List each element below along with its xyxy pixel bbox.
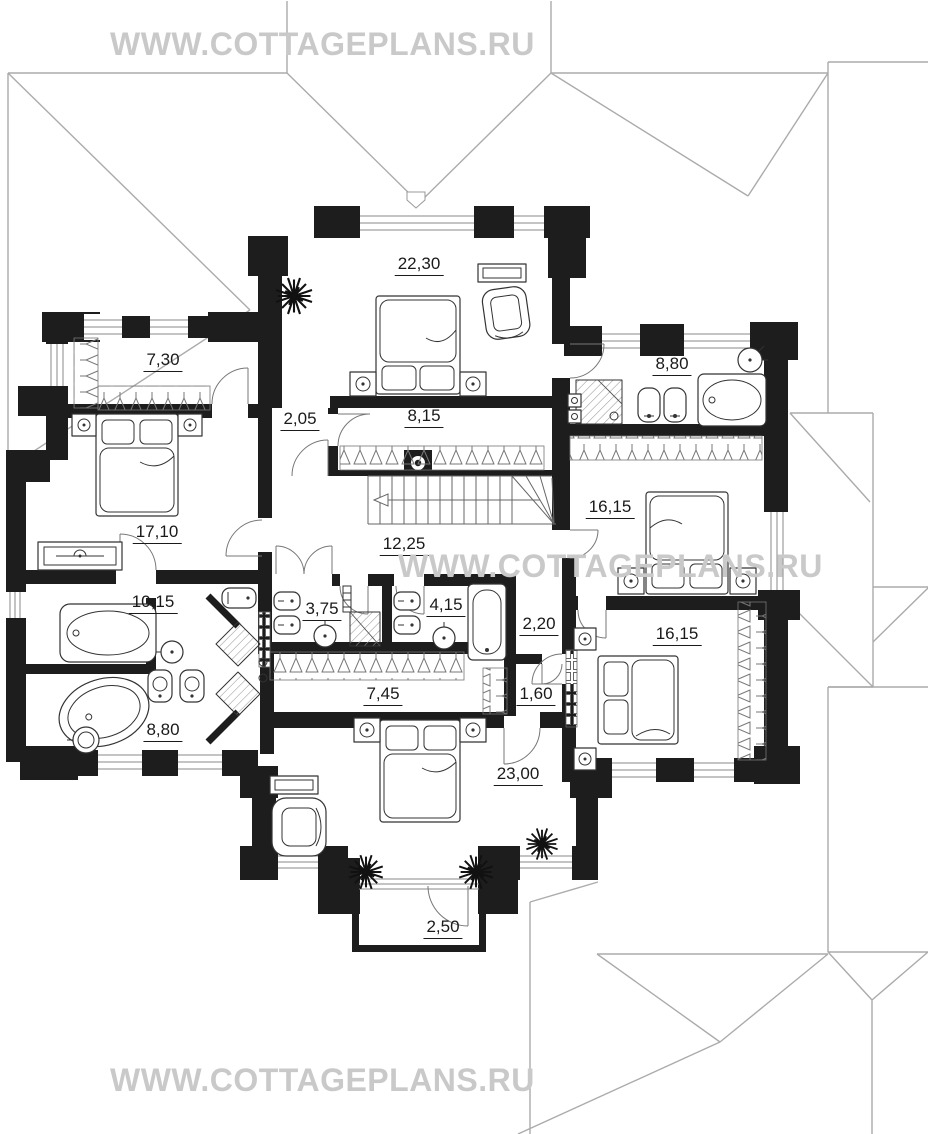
sinks-top-right (638, 388, 686, 422)
room-label-wardrobe-8-15: 8,15 (404, 407, 443, 428)
wardrobe-16-15-lower (738, 602, 766, 760)
room-label-bathroom-4-15: 4,15 (426, 596, 465, 617)
room-label-bedroom-right-upper: 16,15 (586, 498, 635, 519)
room-label-bathroom-top-right: 8,80 (652, 355, 691, 376)
bathtub-4-15 (468, 584, 506, 660)
room-label-bedroom-right-lower: 16,15 (653, 625, 702, 646)
door-2-20-to-1-60 (542, 664, 562, 684)
watermark-middle: WWW.COTTAGEPLANS.RU (398, 548, 823, 585)
tv-top (478, 264, 526, 282)
shower-top-right (576, 380, 622, 424)
rail-8-15 (340, 446, 544, 470)
bed-bedroom-left (72, 414, 202, 516)
bed-bedroom-right-lower (574, 628, 678, 770)
door-bedroom-left (226, 520, 262, 556)
armchair-top (481, 285, 532, 341)
double-door-bath-3-75 (276, 546, 332, 574)
room-label-wardrobe-top-left: 7,30 (143, 351, 182, 372)
watermark-top: WWW.COTTAGEPLANS.RU (110, 26, 535, 63)
room-label-wardrobe-7-45: 7,45 (363, 685, 402, 706)
pedestal-sinks (148, 670, 204, 702)
toilets-3-75 (274, 592, 300, 634)
bed-bedroom-top (350, 296, 486, 396)
door-wardrobe-7-30 (212, 368, 248, 404)
sink-3-75 (314, 620, 336, 647)
toilets-left-pair (222, 588, 256, 608)
sink-alcove (156, 641, 183, 663)
room-label-bathroom-bottom-left: 8,80 (143, 721, 182, 742)
towel-radiator (343, 586, 351, 612)
room-label-hallway-1-60: 1,60 (516, 685, 555, 706)
tv-bottom (270, 776, 318, 794)
room-label-bathroom-3-75: 3,75 (302, 600, 341, 621)
room-label-balcony: 2,50 (423, 918, 462, 939)
room-label-hallway-2-20: 2,20 (519, 615, 558, 636)
rail-7-30 (98, 386, 210, 410)
balcony-french-window (359, 879, 479, 889)
door-hall-2-05 (292, 440, 328, 476)
rail-7-45 (270, 652, 464, 680)
north-arrow (407, 192, 425, 208)
rail-closet-16-15 (570, 436, 762, 460)
bathtub-top-right (698, 374, 766, 426)
door-wardrobe-8-15 (338, 414, 370, 446)
room-label-bedroom-left: 17,10 (133, 523, 182, 544)
hooks-7-30 (74, 338, 98, 408)
watermark-bottom: WWW.COTTAGEPLANS.RU (110, 1062, 535, 1099)
sink-4-15 (433, 622, 455, 649)
room-label-bedroom-top-center: 22,30 (395, 255, 444, 276)
door-bedroom-bottom (504, 728, 540, 764)
armchair-bottom (272, 798, 326, 856)
dresser (38, 542, 122, 570)
room-label-hallway-10-15: 10,15 (129, 593, 178, 614)
bed-bedroom-bottom (354, 718, 486, 822)
rail-7-45-side (483, 668, 507, 714)
bathtub-oval (50, 666, 158, 757)
room-label-hallway-2-05: 2,05 (280, 410, 319, 431)
room-label-bedroom-bottom-center: 23,00 (494, 765, 543, 786)
floor-plan: 22,30 7,30 8,80 2,05 8,15 16,15 17,10 12… (0, 0, 928, 1134)
radiator-corridor (566, 650, 577, 727)
shower-3-75 (350, 612, 380, 646)
